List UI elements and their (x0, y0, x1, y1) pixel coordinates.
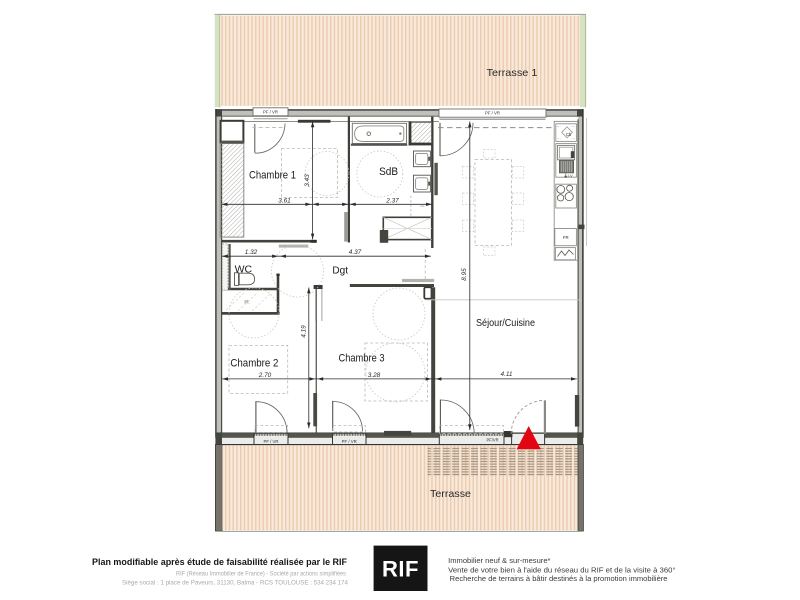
svg-text:4.37: 4.37 (349, 249, 362, 256)
svg-text:Plan modifiable après étude de: Plan modifiable après étude de faisabili… (92, 557, 347, 567)
svg-text:FR: FR (563, 235, 569, 240)
svg-text:LL: LL (421, 204, 425, 208)
svg-text:Terrasse: Terrasse (430, 488, 471, 500)
svg-text:Chambre 3: Chambre 3 (339, 353, 385, 365)
svg-text:PF/VR: PF/VR (486, 437, 498, 442)
svg-text:SdB: SdB (379, 166, 398, 178)
svg-text:Pl.: Pl. (244, 300, 249, 305)
svg-text:Dgt: Dgt (332, 264, 348, 276)
svg-text:Recherche de terrains à bâtir: Recherche de terrains à bâtir destinés à… (450, 576, 668, 583)
svg-text:Cb: Cb (566, 132, 572, 137)
svg-text:Terrasse 1: Terrasse 1 (487, 67, 538, 79)
svg-text:3.43: 3.43 (304, 174, 311, 187)
svg-text:4.11: 4.11 (501, 371, 513, 378)
svg-text:PF / VR: PF / VR (263, 439, 278, 444)
svg-text:2.70: 2.70 (258, 372, 272, 379)
svg-text:2.37: 2.37 (385, 197, 399, 204)
svg-text:LV: LV (568, 174, 573, 178)
svg-text:Vente de votre bien à l'aide d: Vente de votre bien à l'aide du réseau d… (448, 566, 676, 574)
svg-text:PF / VR: PF / VR (485, 111, 500, 116)
svg-text:1.32: 1.32 (245, 249, 258, 256)
svg-text:3.28: 3.28 (368, 372, 381, 379)
svg-text:RIF (Réseau Immobilier de Fran: RIF (Réseau Immobilier de France) - Soci… (176, 570, 347, 577)
svg-text:WC: WC (235, 264, 253, 276)
svg-text:PF / VR: PF / VR (342, 439, 357, 444)
svg-text:4.19: 4.19 (300, 325, 307, 338)
svg-text:3.61: 3.61 (278, 197, 291, 204)
svg-text:Immobilier neuf & sur-mesure*: Immobilier neuf & sur-mesure* (448, 558, 551, 565)
svg-text:Chambre 1: Chambre 1 (249, 170, 296, 182)
svg-text:Chambre 2: Chambre 2 (230, 358, 278, 370)
svg-text:8.95: 8.95 (461, 268, 468, 281)
svg-text:Séjour/Cuisine: Séjour/Cuisine (476, 317, 535, 329)
svg-text:Siège social : 1 place de Pave: Siège social : 1 place de Paveurs, 31130… (122, 580, 348, 587)
svg-text:RIF: RIF (382, 557, 419, 582)
svg-text:PF / VR: PF / VR (263, 109, 278, 114)
